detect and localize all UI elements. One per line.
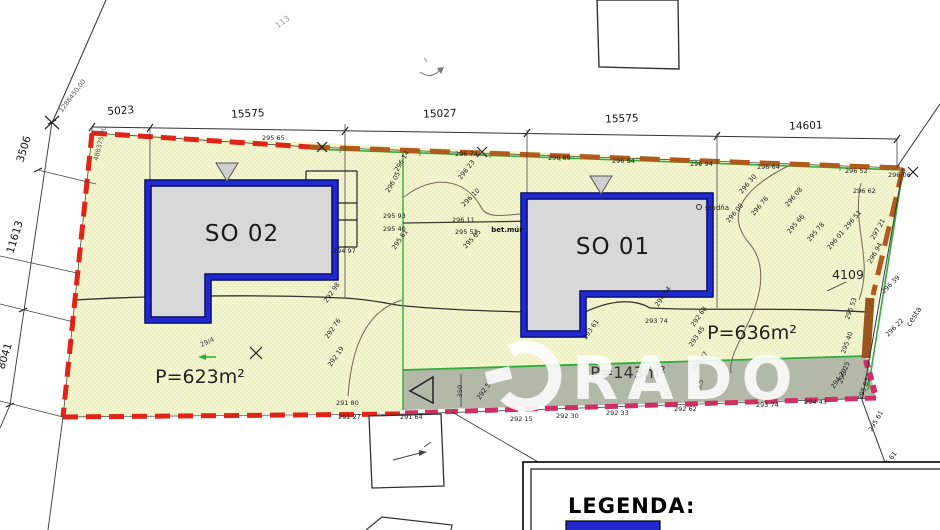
building-label-so02: SO 02 [205, 221, 279, 247]
area-label-left: P=623m² [155, 366, 245, 388]
legend-box: LEGENDA: [523, 462, 940, 530]
spot-elevation: 296 94 [612, 157, 635, 165]
dimension-value: 15575 [231, 107, 265, 121]
retaining-wall-bar [866, 298, 870, 358]
watermark-text: RADO [572, 344, 801, 414]
site-plan-screenshot: 295 65296 74296 89296 94296 94296 64296 … [0, 0, 940, 530]
road-name-label: cesta [904, 305, 923, 328]
spot-elevation: 296 94 [690, 160, 713, 168]
dimension-value: 5023 [107, 104, 135, 118]
spot-elevation: 295 93 [383, 212, 406, 220]
spot-elevation: 296 52 [845, 167, 868, 175]
dimension-value: 15027 [423, 107, 457, 120]
spot-elevation: 296 89 [548, 154, 571, 162]
dimension-value: 3506 [14, 134, 33, 163]
dimension-value: 11613 [5, 219, 26, 254]
spot-elevation: 296 39 [880, 274, 902, 296]
dimension-value: 15575 [605, 112, 639, 125]
spot-elevation: 296 11 [452, 216, 475, 224]
spot-elevation: 296 64 [757, 163, 780, 171]
small-annotation: 113 [274, 14, 292, 30]
area-label-right: P=636m² [707, 322, 797, 344]
coordinates-layer: 1288450.00488375.00 [57, 78, 108, 162]
parcel-number-label: 4109 [832, 267, 864, 282]
dimension-value: 8041 [0, 342, 15, 371]
spot-elevation: 291 27 [338, 413, 361, 421]
spot-elevation: 291 80 [336, 399, 359, 407]
spot-elevation: 291 64 [400, 413, 423, 421]
neighbour-building-top [597, 0, 679, 69]
legend-title: LEGENDA: [568, 494, 695, 518]
concrete-wall-label: bet.múr [491, 226, 523, 234]
spot-elevation: 294 43 [804, 398, 827, 406]
dimensions-top-layer: 502315575150271557514601 [107, 104, 823, 132]
spot-elevation: 296 22 [884, 317, 906, 339]
dimensions-left-layer: 3506116138041 [0, 134, 34, 370]
coordinate-label: 1288450.00 [57, 78, 87, 114]
spot-elevation: 296 74 [455, 150, 478, 158]
neighbour-building-partial [366, 517, 452, 530]
spot-elevation: 292 15 [510, 415, 533, 423]
well-label: studňa [705, 204, 729, 212]
building-label-so01: SO 01 [576, 234, 650, 260]
legend-swatch-building [566, 521, 660, 530]
small-annotation: 350 [456, 385, 464, 397]
spot-elevation: 293 74 [645, 317, 668, 325]
adjacent-lines [0, 405, 583, 530]
spot-elevation: 295 65 [262, 134, 285, 142]
spot-elevation: 294 97 [333, 247, 356, 255]
neighbour-building-bottom [369, 414, 444, 488]
faint-arrow-annotation [420, 58, 444, 76]
spot-elevation: 296 62 [853, 187, 876, 195]
site-plan-drawing: 295 65296 74296 89296 94296 94296 64296 … [0, 0, 940, 530]
dimension-value: 14601 [789, 119, 823, 132]
spot-elevation: 296 06 [888, 171, 911, 179]
